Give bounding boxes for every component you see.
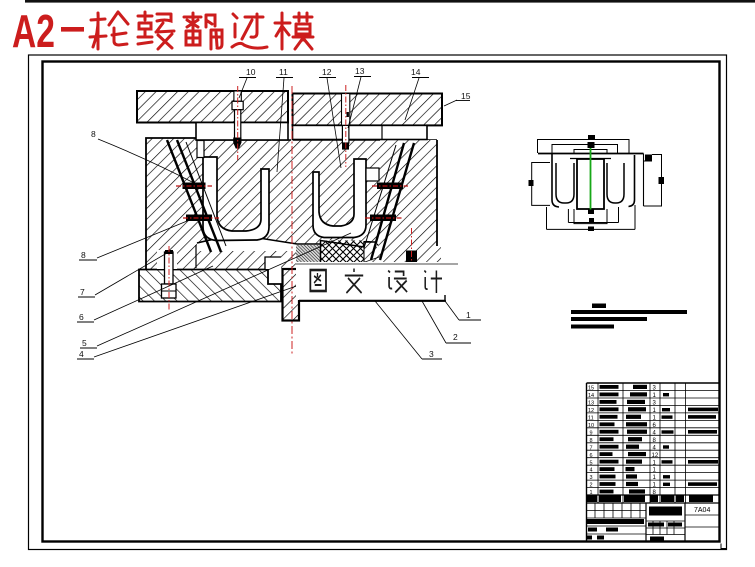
svg-text:12: 12: [588, 408, 594, 414]
svg-text:1: 1: [466, 310, 471, 320]
svg-text:15: 15: [461, 91, 471, 101]
svg-text:7: 7: [80, 287, 85, 297]
svg-text:2: 2: [590, 483, 593, 489]
svg-text:4: 4: [590, 468, 593, 474]
svg-text:5: 5: [590, 460, 593, 466]
svg-text:1: 1: [590, 490, 593, 496]
svg-text:14: 14: [588, 393, 594, 399]
svg-text:12: 12: [652, 453, 659, 459]
svg-text:2: 2: [453, 332, 458, 342]
svg-text:13: 13: [588, 401, 594, 407]
svg-text:4: 4: [79, 349, 84, 359]
svg-text:7A04: 7A04: [694, 507, 710, 514]
svg-text:13: 13: [355, 66, 365, 76]
svg-text:9: 9: [590, 430, 593, 436]
svg-text:3: 3: [429, 349, 434, 359]
svg-text:8: 8: [590, 438, 593, 444]
svg-text:11: 11: [588, 416, 594, 422]
svg-text:15: 15: [588, 386, 594, 392]
svg-text:12: 12: [322, 67, 332, 77]
svg-text:A2: A2: [12, 6, 55, 57]
svg-text:7: 7: [590, 445, 593, 451]
svg-text:10: 10: [588, 423, 594, 429]
svg-text:6: 6: [590, 453, 593, 459]
svg-text:8: 8: [91, 129, 96, 139]
svg-text:8: 8: [81, 250, 86, 260]
svg-text:11: 11: [279, 67, 288, 77]
svg-text:14: 14: [411, 67, 421, 77]
svg-text:6: 6: [79, 312, 84, 322]
svg-text:3: 3: [590, 475, 593, 481]
svg-text:10: 10: [246, 67, 256, 77]
svg-text:5: 5: [82, 338, 87, 348]
